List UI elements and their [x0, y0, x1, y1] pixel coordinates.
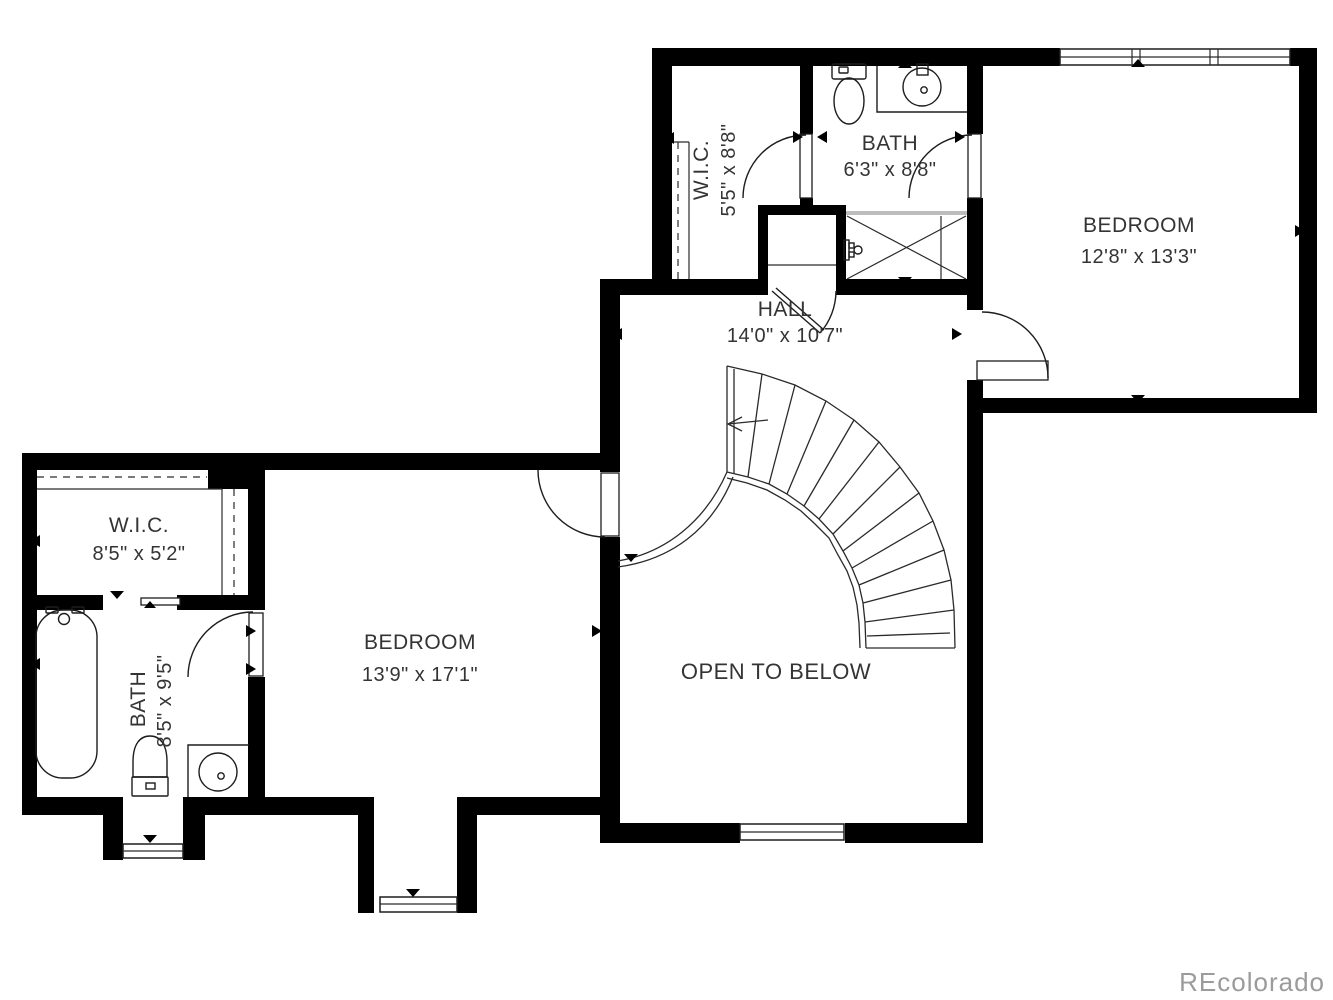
room-label-wic-left: W.I.C.	[109, 514, 169, 537]
room-label-bedroom-left: BEDROOM	[364, 631, 476, 654]
room-dims-bedroom-right: 12'8" x 13'3"	[1081, 246, 1197, 268]
door-bedroom-left	[538, 470, 619, 537]
shower-fixture	[844, 213, 967, 279]
room-label-bath-upper: BATH	[862, 132, 918, 155]
room-dims-wic-left: 8'5" x 5'2"	[93, 543, 186, 565]
room-dims-wic-upper: 5'5" x 8'8"	[718, 124, 740, 217]
bathtub-fixture	[36, 607, 97, 778]
room-label-hall: HALL	[758, 298, 813, 321]
floor-plan: W.I.C. 5'5" x 8'8" BATH 6'3" x 8'8" BEDR…	[0, 0, 1333, 1000]
room-dims-bath-left: 8'5" x 9'5"	[154, 655, 176, 748]
room-label-wic-upper: W.I.C.	[690, 140, 713, 200]
room-dims-hall: 14'0" x 10'7"	[727, 325, 843, 347]
doors	[141, 134, 1048, 677]
door-bedroom-right	[977, 312, 1048, 380]
window-bedroom-right-top	[1060, 49, 1290, 65]
staircase	[618, 366, 955, 648]
watermark-text: REcolorado	[1179, 967, 1325, 997]
window-bedroom-left-bay	[380, 897, 457, 912]
window-bath-left-bay	[123, 844, 183, 858]
room-dims-bedroom-left: 13'9" x 17'1"	[362, 664, 478, 686]
sink-fixture-upper	[877, 64, 967, 112]
railing-open-below	[618, 472, 733, 567]
room-label-open-below: OPEN TO BELOW	[681, 659, 871, 684]
sink-fixture-left	[188, 745, 249, 797]
walls	[22, 48, 1317, 913]
window-open-below-bottom	[740, 824, 844, 840]
room-label-bath-left: BATH	[127, 671, 150, 727]
toilet-fixture-upper	[832, 64, 866, 124]
door-wic-left-pocket	[141, 598, 180, 605]
floor-plan-page: W.I.C. 5'5" x 8'8" BATH 6'3" x 8'8" BEDR…	[0, 0, 1333, 1000]
room-label-bedroom-right: BEDROOM	[1083, 214, 1195, 237]
door-wic-upper	[743, 134, 812, 198]
room-dims-bath-upper: 6'3" x 8'8"	[844, 159, 937, 181]
